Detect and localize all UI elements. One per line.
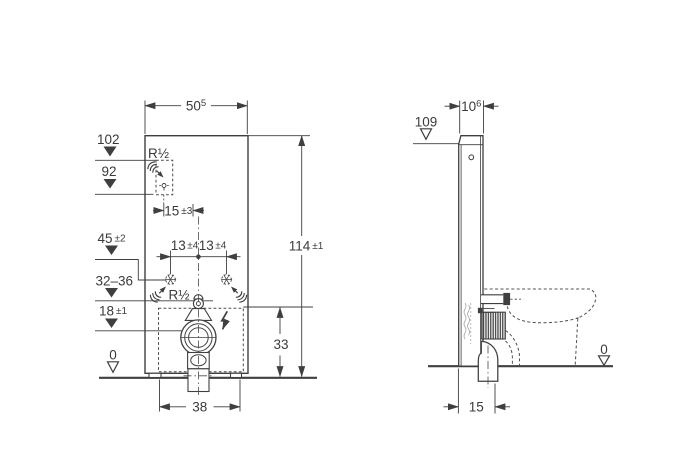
service-height-label: 33 <box>273 337 288 352</box>
side-depth-label: 106 <box>461 99 481 115</box>
level-32-36-label: 32–36 <box>96 274 134 289</box>
dim-service-height: 33 <box>243 307 313 377</box>
panel-foot-right <box>231 373 242 377</box>
level-109-label: 109 <box>415 114 438 129</box>
front-view: 505 114±1 102 92 45±2 32–36 <box>95 98 324 414</box>
front-height-label: 114±1 <box>289 238 324 253</box>
outlet-offset-label: 15 <box>469 399 484 414</box>
dim-outlet-offset: 15 <box>444 369 511 415</box>
side-view: 106 109 0 15 <box>413 99 613 415</box>
dim-front-width: 505 <box>145 98 247 134</box>
front-width-label: 505 <box>186 98 206 114</box>
level-0-front: 0 <box>108 348 119 373</box>
level-0-side: 0 <box>599 342 610 366</box>
level-92-marker <box>104 179 117 189</box>
level-102-marker <box>104 147 117 157</box>
level-109-marker <box>421 129 432 140</box>
level-0-side-label: 0 <box>600 342 608 357</box>
drawing-svg: 505 114±1 102 92 45±2 32–36 <box>0 0 683 471</box>
level-109: 109 <box>413 114 459 143</box>
level-18-label: 18±1 <box>99 304 128 319</box>
level-18-marker <box>105 319 118 329</box>
panel-foot-left <box>149 373 161 377</box>
level-0-front-marker <box>108 362 119 373</box>
anchor-left-label: 13±4 <box>171 238 199 253</box>
connector-cap <box>503 293 510 305</box>
level-45-marker <box>105 246 118 256</box>
technical-drawing-page: 505 114±1 102 92 45±2 32–36 <box>0 0 683 471</box>
anchor-right-label: 13±4 <box>199 238 227 253</box>
tap-offset-label: 15±3 <box>164 203 193 218</box>
ribbed-hose <box>481 312 505 339</box>
level-0-front-label: 0 <box>109 348 117 363</box>
base-width-label: 38 <box>192 399 207 414</box>
level-0-side-marker <box>599 356 610 366</box>
level-92-label: 92 <box>102 164 117 179</box>
flush-connector <box>481 293 521 305</box>
level-32-36-marker <box>105 288 118 298</box>
dim-side-depth: 106 <box>445 99 499 134</box>
level-45-label: 45±2 <box>98 231 127 246</box>
level-102-label: 102 <box>97 132 120 147</box>
supply-top-label: R½ <box>148 146 169 161</box>
supply-mid-label: R½ <box>169 288 190 303</box>
